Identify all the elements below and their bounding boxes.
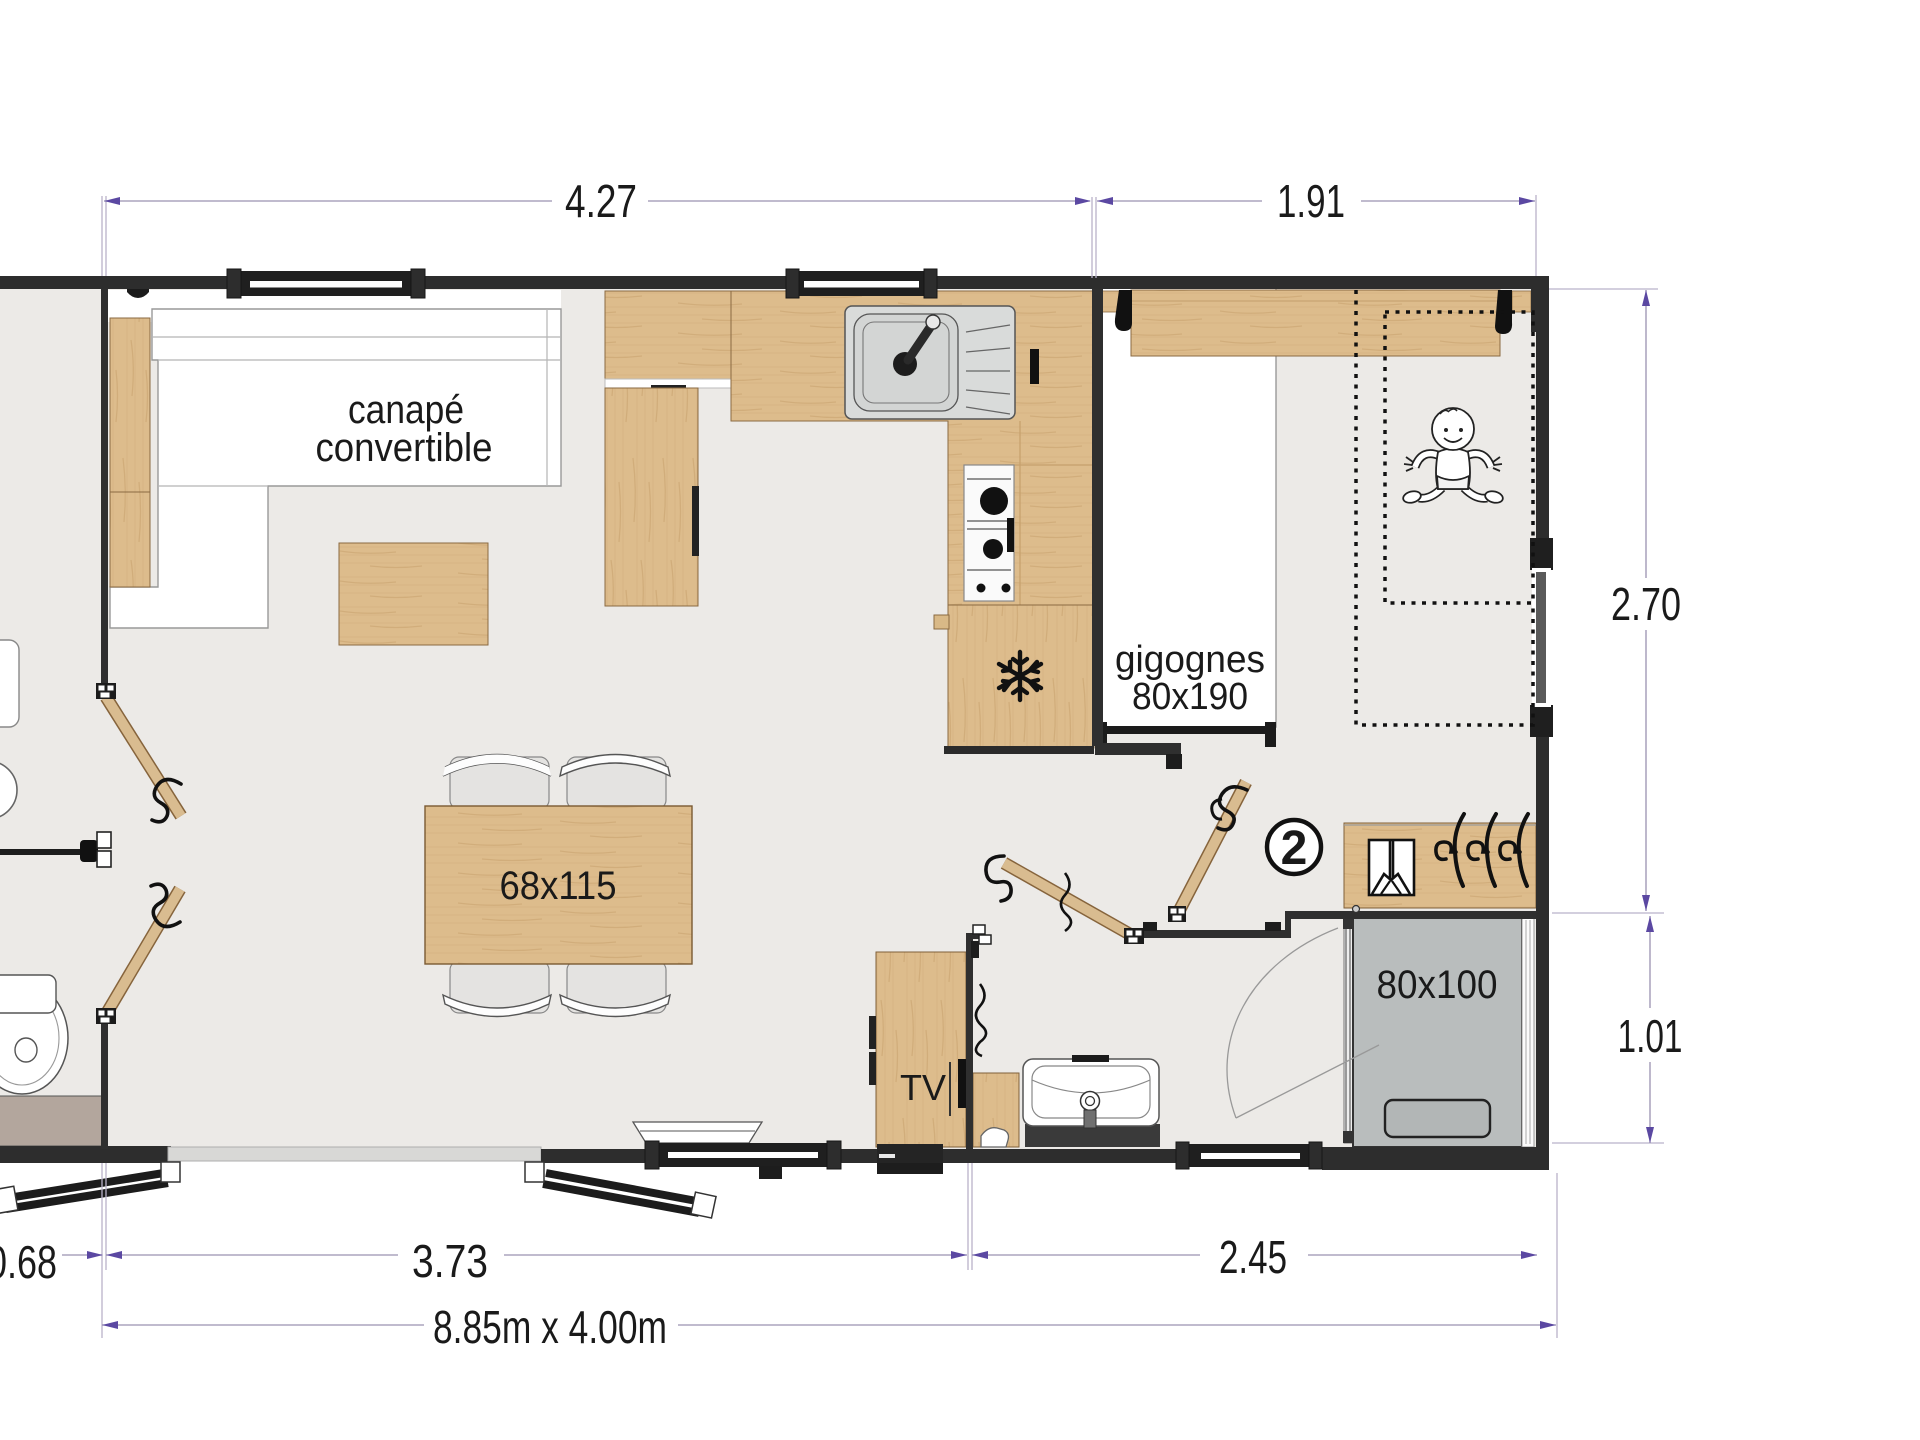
svg-text:1.01: 1.01 — [1618, 1010, 1683, 1062]
svg-text:1.91: 1.91 — [1277, 175, 1345, 227]
svg-text:0.68: 0.68 — [0, 1236, 57, 1288]
svg-text:4.27: 4.27 — [565, 175, 637, 227]
svg-text:2.70: 2.70 — [1611, 578, 1681, 630]
svg-text:8.85m x 4.00m: 8.85m x 4.00m — [433, 1301, 667, 1353]
svg-text:TV: TV — [900, 1067, 946, 1108]
svg-text:80x190: 80x190 — [1132, 676, 1248, 718]
svg-text:convertible: convertible — [316, 426, 493, 470]
svg-text:gigognes: gigognes — [1115, 639, 1265, 681]
svg-text:2.45: 2.45 — [1219, 1231, 1287, 1283]
svg-text:80x100: 80x100 — [1377, 963, 1498, 1007]
svg-text:68x115: 68x115 — [500, 864, 617, 908]
svg-text:3.73: 3.73 — [412, 1235, 488, 1287]
svg-text:2: 2 — [1281, 822, 1308, 875]
